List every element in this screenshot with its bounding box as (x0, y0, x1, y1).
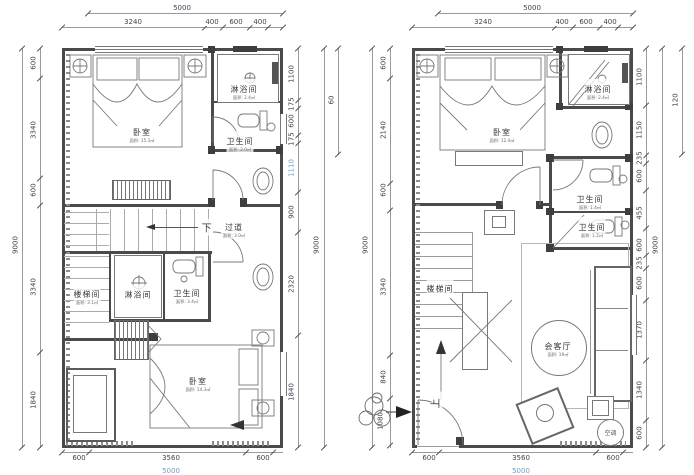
dim-label: 1840 (289, 382, 296, 402)
dim-label: 3340 (31, 277, 38, 297)
plant-icon (359, 393, 390, 426)
room-name: 淋浴间 (231, 85, 258, 94)
dim-label: 600 (637, 168, 644, 183)
dim-label: 60 (329, 95, 336, 106)
wc1-fixtures (553, 160, 627, 190)
dim-line (412, 452, 633, 453)
dim-label: 2140 (381, 120, 388, 140)
down-label: 下 (202, 219, 213, 236)
dim-label: 600 (228, 19, 243, 26)
dim-label: 1100 (289, 64, 296, 84)
room-name: 卫生间 (174, 289, 201, 298)
dim-label: 600 (421, 455, 436, 462)
up-text: 上 (432, 397, 443, 408)
plan-a-fixtures (62, 48, 283, 448)
room-area: 面积: 1.4㎡ (579, 206, 602, 210)
room-label-shower: 淋浴间面积: 2.4㎡ (585, 79, 612, 101)
dim-label: 600 (381, 55, 388, 70)
dim-label: 840 (381, 369, 388, 384)
entry-symbols (352, 386, 414, 448)
room-label-wc-top: 卫生间面积: 2.0㎡ (227, 131, 254, 153)
room-label-wc1: 卫生间面积: 1.4㎡ (577, 189, 604, 211)
dim-label: 600 (578, 19, 593, 26)
dim-label: 5000 (522, 5, 542, 12)
dim-line (40, 48, 41, 448)
room-name: 卫生间 (227, 137, 254, 146)
dim-label: 1370 (637, 320, 644, 340)
tv-view-lines (450, 298, 512, 362)
dim-label: 5000 (511, 468, 531, 475)
dim-label: 900 (289, 204, 296, 219)
dim-line (438, 13, 633, 14)
dim-line (62, 452, 283, 453)
dim-label: 600 (289, 113, 296, 128)
dim-tick (280, 10, 286, 16)
up-label: 上 (432, 392, 443, 409)
dim-line (324, 48, 325, 448)
dim-label: 400 (252, 19, 267, 26)
dim-tick (659, 444, 665, 450)
dim-tick (630, 10, 636, 16)
down-arrow-line (152, 227, 198, 228)
dim-label: 600 (637, 425, 644, 440)
room-name: 楼梯间 (74, 290, 101, 299)
dim-label: 400 (554, 19, 569, 26)
dim-label: 2320 (289, 274, 296, 294)
dim-label: 600 (71, 455, 86, 462)
dim-tick (295, 444, 301, 450)
dim-label: 235 (637, 255, 644, 270)
dim-label: 9000 (13, 235, 20, 255)
dim-label: 1150 (637, 120, 644, 140)
room-area: 面积: 14.3㎡ (185, 388, 210, 392)
dim-label: 3560 (161, 455, 181, 462)
dim-label: 1100 (637, 67, 644, 87)
room-area: 面积: 15.3㎡ (129, 139, 154, 143)
dim-tick (643, 444, 649, 450)
room-name: 卫生间 (579, 223, 606, 232)
room-name: 卧室 (133, 128, 151, 137)
nightstands (70, 55, 206, 77)
dim-label: 455 (637, 205, 644, 220)
floorplan-canvas: { "palette":{"wall":"#4a4a4a","line":"#9… (0, 0, 694, 473)
entry-arrow-icon (396, 406, 412, 418)
dim-label: 9000 (653, 235, 660, 255)
room-name: 淋浴间 (585, 85, 612, 94)
dim-label: 600 (255, 455, 270, 462)
room-area: 面积: 3.0㎡ (223, 234, 245, 238)
room-name: 会客厅 (545, 342, 572, 351)
dim-label: 600 (381, 182, 388, 197)
dim-label: 600 (31, 55, 38, 70)
dim-label: 3340 (31, 120, 38, 140)
room-name: 楼梯间 (427, 285, 454, 294)
dim-label: 5000 (161, 468, 181, 475)
dim-label: 3240 (123, 19, 143, 26)
room-label-shower-top: 淋浴间面积: 2.4㎡ (231, 79, 258, 101)
dim-label: 120 (673, 92, 680, 107)
dim-line (646, 48, 647, 448)
room-label-wc-mid: 卫生间面积: 3.4㎡ (174, 283, 201, 305)
dim-line (22, 48, 23, 448)
dim-tick (679, 151, 685, 157)
bedroom-door (502, 167, 540, 205)
room-label-corridor: 过道面积: 3.0㎡ (221, 217, 247, 239)
dim-label: 600 (637, 237, 644, 252)
dim-tick (335, 151, 341, 157)
dim-label: 1840 (31, 390, 38, 410)
dim-label: 3240 (473, 19, 493, 26)
dim-label: 3560 (511, 455, 531, 462)
dim-label: 600 (605, 455, 620, 462)
dim-label: 9000 (363, 235, 370, 255)
room-area: 面积: 12.4㎡ (489, 139, 514, 143)
room-area: 面积: 2.0㎡ (229, 148, 252, 152)
down-arrow-head (146, 224, 155, 230)
dim-label: 400 (204, 19, 219, 26)
room-area: 面积: 2.4㎡ (233, 96, 256, 100)
washbasin-inner (596, 126, 608, 144)
dim-line (338, 48, 339, 155)
room-area: 面积: 2.4㎡ (587, 96, 610, 100)
room-name: 过道 (225, 223, 243, 232)
dim-tick (37, 444, 43, 450)
room-label-bedroom: 卧室面积: 12.4㎡ (487, 122, 516, 144)
dim-tick (19, 444, 25, 450)
room-label-stair: 楼梯间面积: 3.1㎡ (74, 284, 101, 306)
room-name: 卫生间 (577, 195, 604, 204)
down-text: 下 (202, 224, 213, 235)
room-label-stair: 楼梯间 (427, 279, 454, 296)
dim-label: 1340 (637, 380, 644, 400)
dim-label: 175 (289, 131, 296, 146)
room-label-bedroom-top: 卧室面积: 15.3㎡ (127, 122, 156, 144)
dim-label: 9000 (314, 235, 321, 255)
dim-label: 400 (602, 19, 617, 26)
room-label-living: 会客厅面积: 19㎡ (545, 336, 572, 358)
room-area: 面积: 1.2㎡ (581, 234, 604, 238)
room-label-shower-mid: 淋浴间 (125, 285, 152, 302)
dim-tick (630, 24, 636, 30)
dim-label: 600 (31, 182, 38, 197)
mid-bath-fixtures (131, 232, 273, 291)
plan-b-fixtures (412, 48, 633, 448)
dim-tick (280, 24, 286, 30)
dim-label: 5000 (172, 5, 192, 12)
dim-label: 175 (289, 96, 296, 111)
dim-label: 3340 (381, 277, 388, 297)
room-label-bedroom-bottom: 卧室面积: 14.3㎡ (183, 371, 212, 393)
dim-tick (321, 444, 327, 450)
dim-line (682, 48, 683, 155)
room-name: 淋浴间 (125, 291, 152, 300)
room-label-wc2: 卫生间面积: 1.2㎡ (579, 217, 606, 239)
dim-line (662, 48, 663, 448)
dim-label: 1110 (289, 158, 296, 178)
room-area: 面积: 19㎡ (547, 353, 570, 357)
stair-chevron (147, 324, 161, 354)
dim-label: 600 (637, 275, 644, 290)
room-name: 卧室 (189, 377, 207, 386)
room-area: 面积: 3.1㎡ (76, 301, 99, 305)
room-name: 卧室 (493, 128, 511, 137)
room-area: 面积: 3.4㎡ (176, 300, 199, 304)
dim-line (88, 13, 283, 14)
corridor-fixtures (213, 168, 273, 200)
dim-label: 235 (637, 150, 644, 165)
